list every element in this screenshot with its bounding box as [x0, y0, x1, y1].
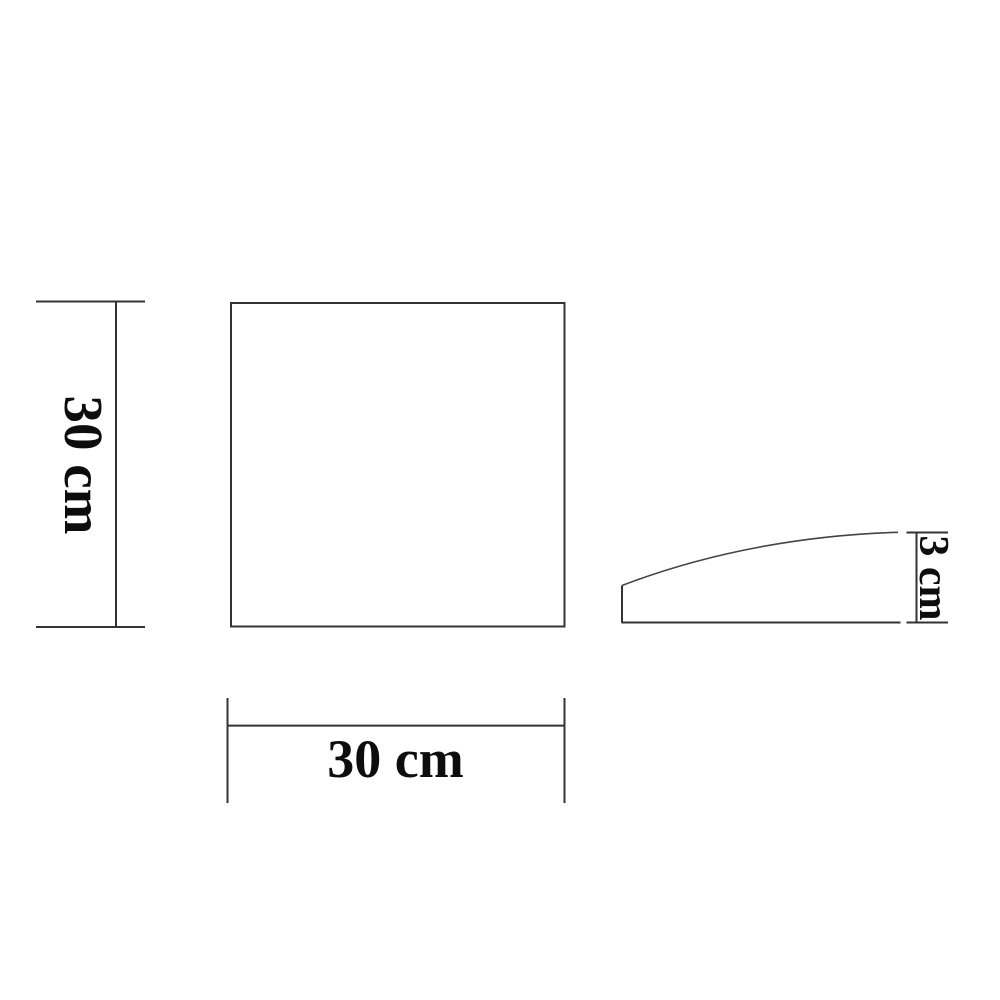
svg-text:30 cm: 30 cm: [53, 396, 114, 535]
svg-text:3 cm: 3 cm: [910, 535, 956, 620]
svg-text:30 cm: 30 cm: [327, 729, 463, 789]
